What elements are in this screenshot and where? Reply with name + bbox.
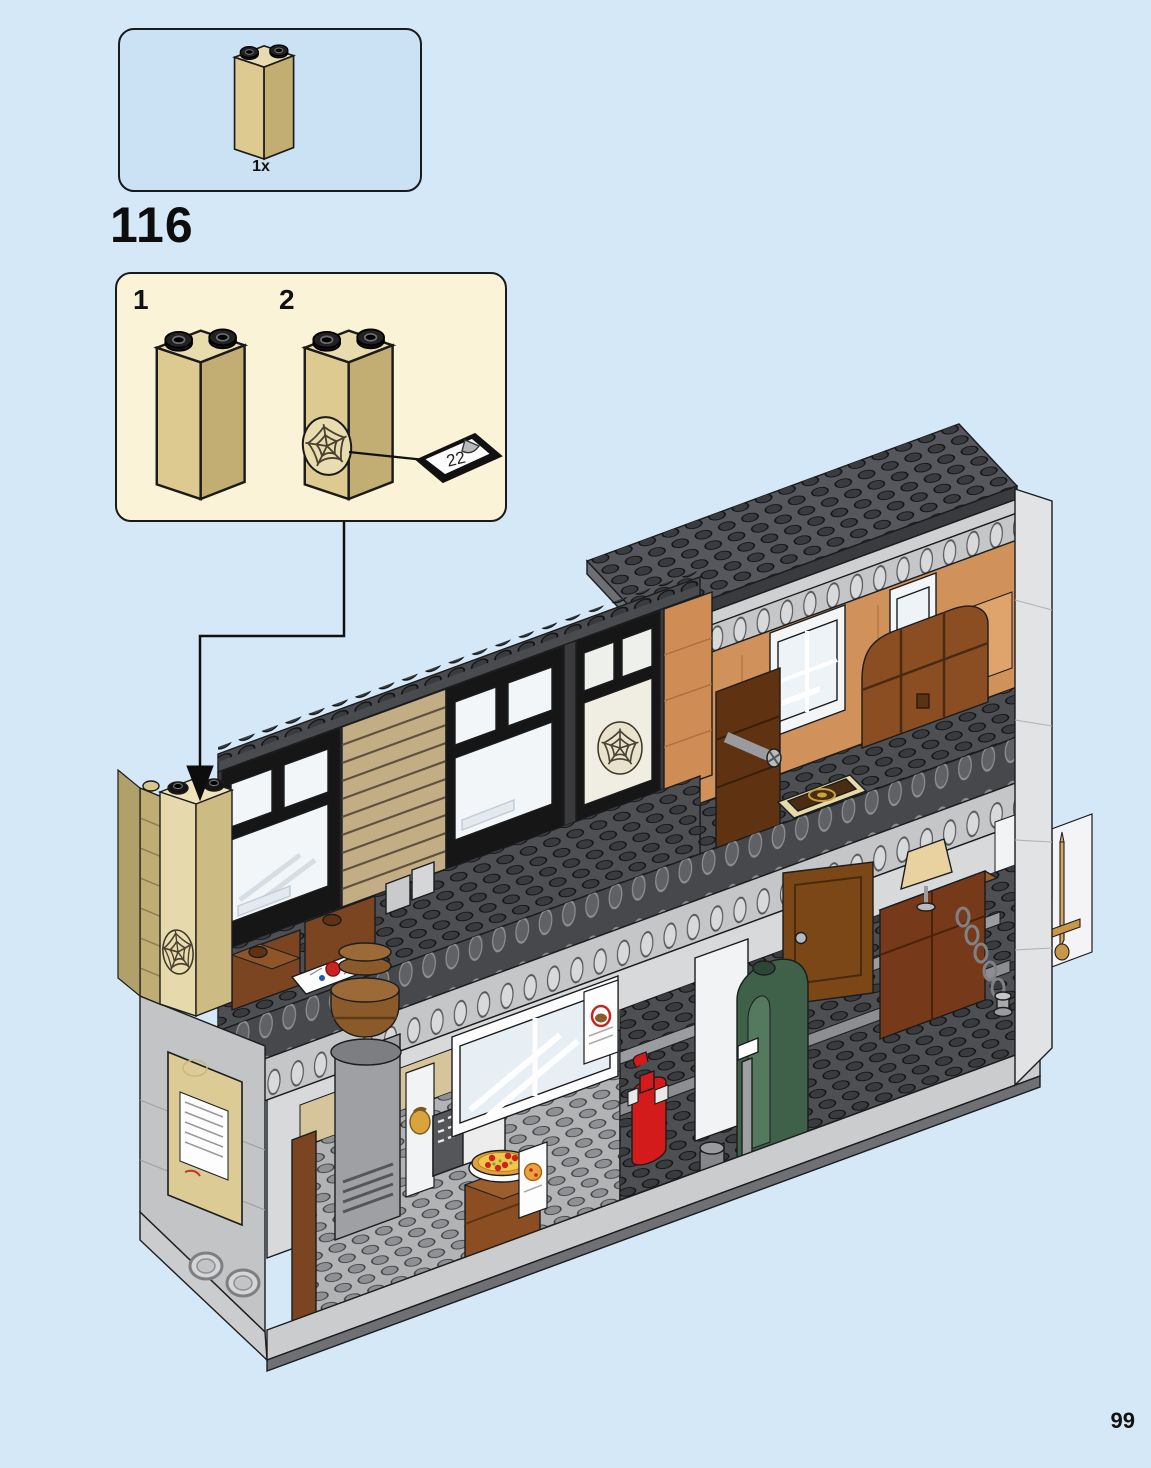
right-end-wall xyxy=(1015,489,1052,1085)
candlestick-icon xyxy=(994,992,1012,1017)
menu-board-icon xyxy=(168,1052,242,1225)
substep-1-brick xyxy=(157,329,245,499)
lego-building-icon xyxy=(118,424,1092,1371)
instruction-page: 1x 116 1 2 22 99 xyxy=(0,0,1151,1468)
step-number: 116 xyxy=(110,196,194,254)
assembly-box: 1 2 22 xyxy=(115,272,507,522)
poster-icon xyxy=(519,1142,547,1218)
placed-tan-brick xyxy=(160,778,232,1016)
bin-lid xyxy=(700,1142,724,1154)
poster-icon xyxy=(584,980,618,1064)
wood-post xyxy=(292,1131,316,1331)
page-number: 99 xyxy=(1075,1408,1135,1434)
phone-icon xyxy=(406,1063,434,1197)
sticker-22-icon: 22 xyxy=(417,434,501,482)
oven-icon xyxy=(331,1034,401,1240)
assembly-box-graphics: 22 xyxy=(117,274,505,520)
quantity-label: 1x xyxy=(226,158,296,176)
substep-2-brick xyxy=(299,329,393,499)
